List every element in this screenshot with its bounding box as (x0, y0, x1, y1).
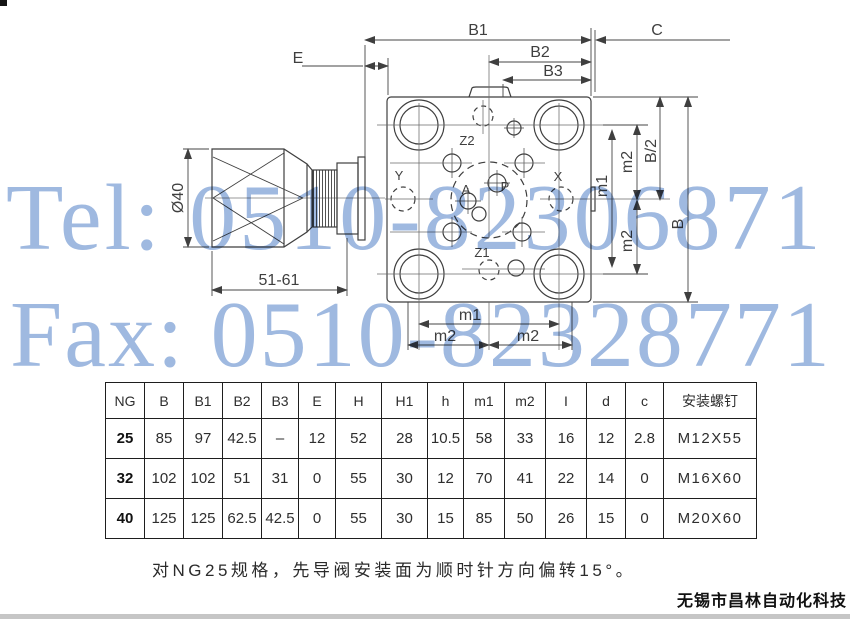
column-header: h (428, 383, 464, 419)
value-cell: 62.5 (223, 499, 262, 539)
value-cell: M20X60 (664, 499, 757, 539)
adjustment-knob (205, 149, 385, 247)
ng-size-cell: 40 (106, 499, 145, 539)
port-label-x: X (554, 169, 563, 184)
port-label-z2: Z2 (459, 133, 474, 148)
ng-size-cell: 32 (106, 459, 145, 499)
column-header: B3 (262, 383, 299, 419)
column-header: B1 (184, 383, 223, 419)
dim-label-b3: B3 (543, 63, 563, 80)
dim-label-e: E (293, 50, 304, 67)
column-header: d (587, 383, 626, 419)
technical-drawing: B1 C B2 B3 E Ø40 51-61 m1 m2 B/2 m2 B m1… (0, 0, 850, 378)
port-label-a: A (462, 182, 471, 197)
value-cell: 55 (336, 499, 382, 539)
table-header-row: NGBB1B2B3EHH1hm1m2Idc安装螺钉 (106, 383, 757, 419)
table-row: 25859742.5–12522810.5583316122.8M12X55 (106, 419, 757, 459)
value-cell: 31 (262, 459, 299, 499)
value-cell: 22 (546, 459, 587, 499)
scan-bottom-strip (0, 614, 850, 619)
value-cell: 15 (587, 499, 626, 539)
dim-label-b-half: B/2 (643, 139, 660, 163)
company-name: 无锡市昌林自动化科技 (677, 587, 847, 611)
small-hole (472, 207, 486, 221)
ng-size-cell: 25 (106, 419, 145, 459)
value-cell: 0 (299, 499, 336, 539)
value-cell: 52 (336, 419, 382, 459)
column-header: I (546, 383, 587, 419)
value-cell: 42.5 (262, 499, 299, 539)
column-header: c (626, 383, 664, 419)
value-cell: 12 (299, 419, 336, 459)
threaded-section (313, 170, 337, 227)
mounting-flange (358, 157, 365, 240)
center-lines (377, 55, 670, 350)
value-cell: 12 (587, 419, 626, 459)
port-label-p: P (501, 179, 510, 194)
value-cell: 102 (184, 459, 223, 499)
spec-table: NGBB1B2B3EHH1hm1m2Idc安装螺钉25859742.5–1252… (105, 382, 757, 539)
dim-label-m2-right-bottom: m2 (619, 230, 636, 252)
top-boss (469, 87, 511, 97)
value-cell: 10.5 (428, 419, 464, 459)
dim-label-c: C (651, 22, 663, 39)
port-label-y: Y (395, 168, 404, 183)
knob-collar (337, 163, 358, 234)
dim-label-b1: B1 (468, 22, 488, 39)
column-header: H1 (382, 383, 428, 419)
port-z1-circle (479, 260, 499, 280)
value-cell: 97 (184, 419, 223, 459)
value-cell: M16X60 (664, 459, 757, 499)
value-cell: 28 (382, 419, 428, 459)
note-text: 对NG25规格，先导阀安装面为顺时针方向偏转15°。 (152, 556, 636, 581)
value-cell: 85 (145, 419, 184, 459)
dim-label-m1-right: m1 (594, 175, 611, 197)
value-cell: 51 (223, 459, 262, 499)
value-cell: 0 (626, 499, 664, 539)
dim-label-m2-bottom-left: m2 (434, 328, 456, 345)
dim-label-m1-bottom: m1 (459, 307, 481, 324)
value-cell: 55 (336, 459, 382, 499)
dim-label-m2-right-top: m2 (619, 151, 636, 173)
value-cell: 102 (145, 459, 184, 499)
value-cell: 42.5 (223, 419, 262, 459)
value-cell: M12X55 (664, 419, 757, 459)
column-header: m2 (505, 383, 546, 419)
column-header: NG (106, 383, 145, 419)
value-cell: 30 (382, 459, 428, 499)
dim-label-b2: B2 (530, 44, 550, 61)
value-cell: 2.8 (626, 419, 664, 459)
value-cell: 125 (145, 499, 184, 539)
dim-label-b: B (670, 219, 687, 230)
table-row: 3210210251310553012704122140M16X60 (106, 459, 757, 499)
port-labels: Z2 Z1 Y X A P (395, 133, 563, 260)
datasheet-page: B1 C B2 B3 E Ø40 51-61 m1 m2 B/2 m2 B m1… (0, 0, 850, 619)
dim-label-dia40: Ø40 (170, 183, 187, 213)
value-cell: 33 (505, 419, 546, 459)
value-cell: 15 (428, 499, 464, 539)
value-cell: – (262, 419, 299, 459)
value-cell: 125 (184, 499, 223, 539)
value-cell: 50 (505, 499, 546, 539)
column-header: m1 (464, 383, 505, 419)
value-cell: 0 (299, 459, 336, 499)
dim-label-51-61: 51-61 (259, 272, 300, 289)
column-header: H (336, 383, 382, 419)
table-row: 4012512562.542.50553015855026150M20X60 (106, 499, 757, 539)
column-header: B (145, 383, 184, 419)
value-cell: 26 (546, 499, 587, 539)
value-cell: 14 (587, 459, 626, 499)
valve-body (387, 87, 595, 302)
small-hole (508, 260, 524, 276)
value-cell: 41 (505, 459, 546, 499)
dim-label-m2-bottom-right: m2 (517, 328, 539, 345)
value-cell: 16 (546, 419, 587, 459)
value-cell: 30 (382, 499, 428, 539)
value-cell: 12 (428, 459, 464, 499)
column-header: E (299, 383, 336, 419)
value-cell: 0 (626, 459, 664, 499)
column-header: B2 (223, 383, 262, 419)
value-cell: 85 (464, 499, 505, 539)
value-cell: 58 (464, 419, 505, 459)
port-label-z1: Z1 (474, 245, 489, 260)
column-header: 安装螺钉 (664, 383, 757, 419)
value-cell: 70 (464, 459, 505, 499)
